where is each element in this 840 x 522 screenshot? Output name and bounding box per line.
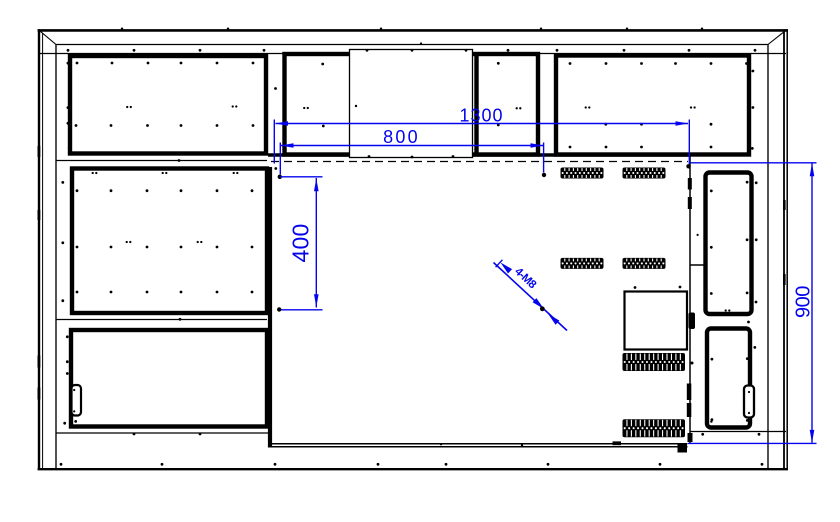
svg-text:1300: 1300 xyxy=(459,106,503,126)
svg-text:900: 900 xyxy=(793,286,815,318)
svg-text:400: 400 xyxy=(288,224,314,263)
svg-text:800: 800 xyxy=(383,127,420,147)
